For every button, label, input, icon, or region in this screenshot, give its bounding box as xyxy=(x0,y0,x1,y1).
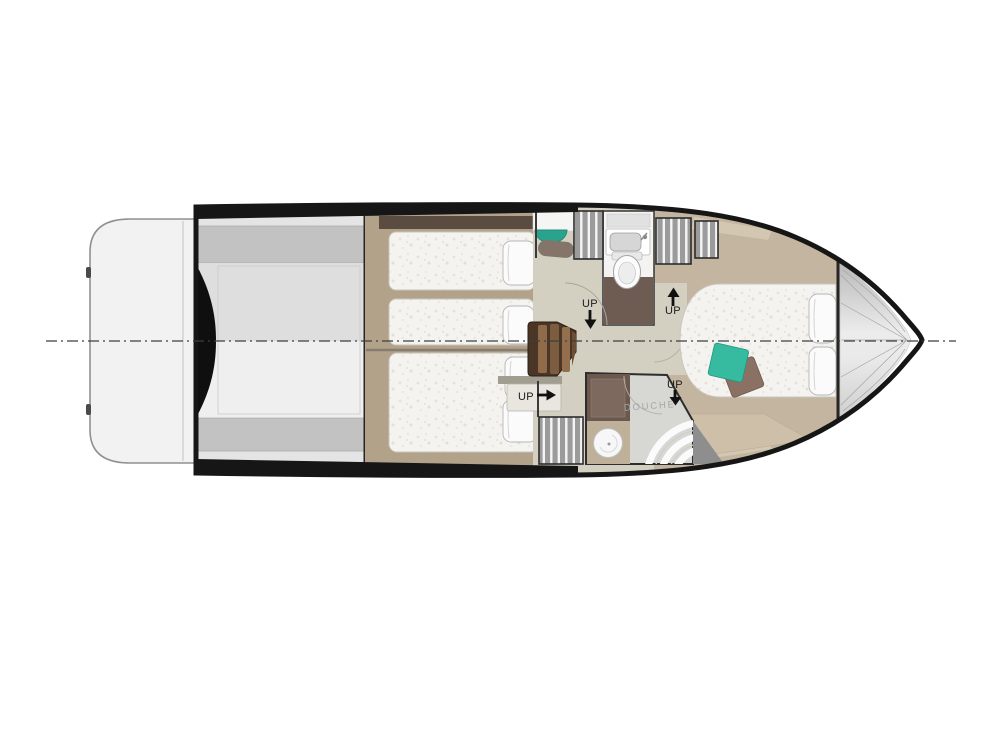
cleat-icon xyxy=(86,267,91,278)
pillow xyxy=(809,347,836,395)
up-text: UP xyxy=(667,379,683,391)
up-text: UP xyxy=(582,298,598,310)
shelf xyxy=(533,211,577,231)
wardrobe-locker xyxy=(574,211,603,259)
mirror xyxy=(607,214,650,227)
yacht-deck-plan: UP UP UP UP DOUCHE xyxy=(0,0,1000,750)
up-text: UP xyxy=(665,305,681,317)
cleat-icon xyxy=(86,404,91,415)
sink-icon xyxy=(610,233,641,251)
stair-tread xyxy=(538,325,547,373)
entry-step xyxy=(507,384,561,411)
guest-cabins xyxy=(365,206,538,473)
stair-tread xyxy=(562,327,570,372)
pillow xyxy=(809,294,836,343)
step-edge xyxy=(498,376,562,384)
stair-tread xyxy=(550,324,559,374)
aft-garage xyxy=(196,204,365,476)
hull-side-trim xyxy=(379,216,534,229)
wardrobe-locker xyxy=(656,218,691,264)
deck-plan-canvas: UP UP UP UP DOUCHE xyxy=(0,0,1000,750)
up-text: UP xyxy=(518,391,534,403)
companionway-stairs xyxy=(528,322,576,376)
wardrobe-locker xyxy=(695,221,718,258)
wardrobe-locker xyxy=(539,417,583,464)
